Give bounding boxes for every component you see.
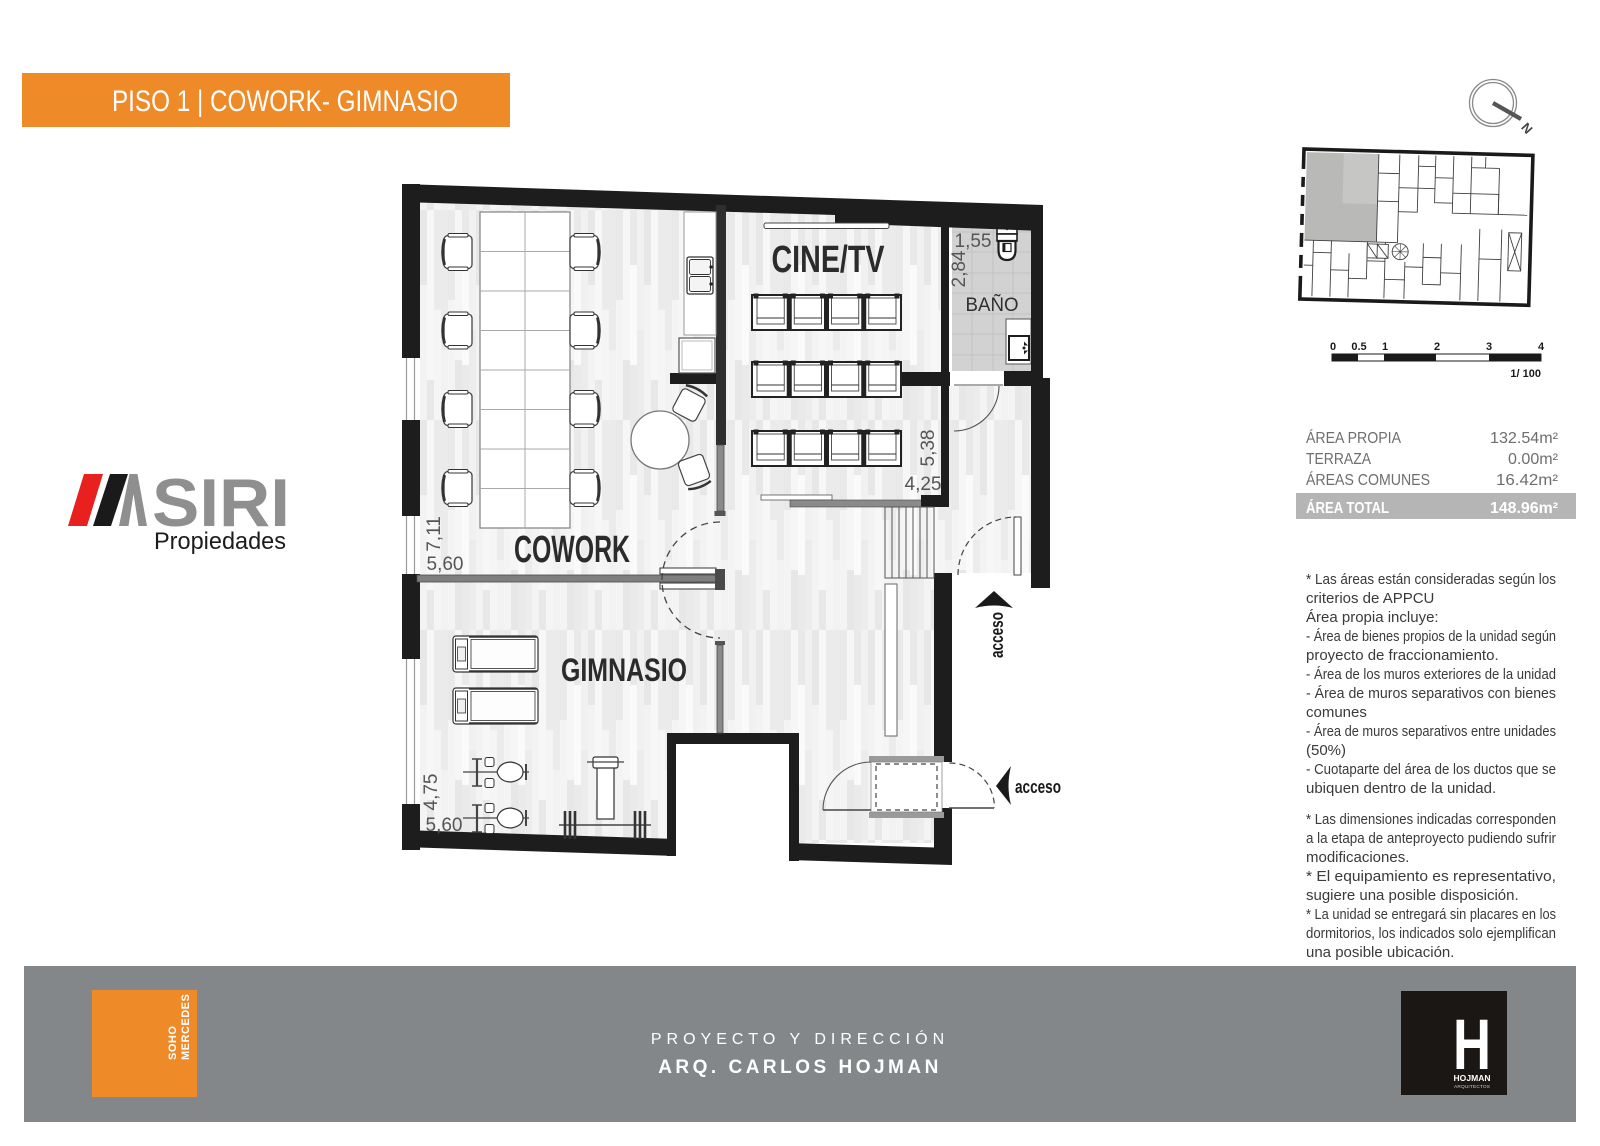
- svg-text:HOJMAN: HOJMAN: [1454, 1073, 1491, 1083]
- svg-text:5,38: 5,38: [918, 430, 939, 467]
- svg-text:2: 2: [1434, 341, 1440, 353]
- svg-text:1: 1: [1382, 341, 1388, 353]
- svg-text:- Área de bienes propios de la: - Área de bienes propios de la unidad se…: [1306, 628, 1556, 645]
- svg-text:acceso: acceso: [1015, 776, 1061, 797]
- svg-text:5,60: 5,60: [426, 815, 463, 836]
- svg-text:16.42m²: 16.42m²: [1496, 472, 1558, 489]
- svg-text:* La unidad se entregará sin p: * La unidad se entregará sin placares en…: [1306, 906, 1556, 923]
- svg-text:- Área de muros separativos en: - Área de muros separativos entre unidad…: [1306, 723, 1556, 740]
- svg-text:- Área de los muros exteriores: - Área de los muros exteriores de la uni…: [1306, 666, 1556, 683]
- svg-text:ARQUITECTOS: ARQUITECTOS: [1454, 1084, 1490, 1090]
- svg-text:0.00m²: 0.00m²: [1508, 451, 1558, 468]
- svg-text:sugiere una posible disposició: sugiere una posible disposición.: [1306, 887, 1519, 904]
- svg-text:1/ 100: 1/ 100: [1510, 368, 1541, 380]
- svg-text:ubiquen dentro de la unidad.: ubiquen dentro de la unidad.: [1306, 780, 1496, 797]
- svg-text:PROYECTO Y DIRECCIÓN: PROYECTO Y DIRECCIÓN: [651, 1029, 949, 1048]
- svg-text:PISO 1 | COWORK- GIMNASIO: PISO 1 | COWORK- GIMNASIO: [112, 85, 458, 118]
- svg-text:148.96m²: 148.96m²: [1490, 500, 1558, 517]
- svg-text:Área propia incluye:: Área propia incluye:: [1306, 609, 1439, 626]
- svg-text:2,84: 2,84: [949, 250, 970, 287]
- svg-text:a la etapa de anteproyecto pud: a la etapa de anteproyecto pudiendo sufr…: [1306, 830, 1556, 847]
- svg-text:acceso: acceso: [986, 612, 1007, 658]
- svg-text:3: 3: [1486, 341, 1492, 353]
- svg-text:* El equipamiento es represent: * El equipamiento es representativo,: [1306, 868, 1556, 885]
- svg-text:GIMNASIO: GIMNASIO: [561, 652, 687, 688]
- svg-text:ÁREA PROPIA: ÁREA PROPIA: [1306, 430, 1402, 447]
- svg-text:4,25: 4,25: [905, 474, 942, 495]
- svg-text:TERRAZA: TERRAZA: [1306, 451, 1372, 468]
- svg-text:modificaciones.: modificaciones.: [1306, 849, 1409, 866]
- svg-text:4: 4: [1538, 341, 1545, 353]
- svg-text:ÁREA TOTAL: ÁREA TOTAL: [1306, 500, 1389, 517]
- svg-text:SOHO: SOHO: [167, 1026, 179, 1060]
- svg-text:(50%): (50%): [1306, 742, 1346, 759]
- svg-text:5,60: 5,60: [427, 554, 464, 575]
- svg-text:criterios de APPCU: criterios de APPCU: [1306, 590, 1434, 607]
- svg-text:dormitorios, los indicados sol: dormitorios, los indicados solo ejemplif…: [1306, 925, 1556, 942]
- svg-text:proyecto de fraccionamiento.: proyecto de fraccionamiento.: [1306, 647, 1499, 664]
- svg-text:- Cuotaparte del área de los d: - Cuotaparte del área de los ductos que …: [1306, 761, 1556, 778]
- svg-text:1,55: 1,55: [955, 231, 992, 252]
- svg-text:BAÑO: BAÑO: [966, 294, 1019, 316]
- svg-text:COWORK: COWORK: [514, 529, 630, 571]
- svg-text:ÁREAS COMUNES: ÁREAS COMUNES: [1306, 472, 1430, 489]
- svg-text:0: 0: [1330, 341, 1336, 353]
- svg-text:comunes: comunes: [1306, 704, 1367, 721]
- svg-text:* Las dimensiones indicadas co: * Las dimensiones indicadas corresponden: [1306, 811, 1556, 828]
- svg-text:CINE/TV: CINE/TV: [772, 239, 885, 281]
- svg-text:- Área de muros separativos co: - Área de muros separativos con bienes: [1306, 685, 1556, 702]
- svg-text:* Las áreas están consideradas: * Las áreas están consideradas según los: [1306, 571, 1556, 588]
- svg-text:MERCEDES: MERCEDES: [180, 994, 192, 1060]
- svg-text:ARQ. CARLOS HOJMAN: ARQ. CARLOS HOJMAN: [658, 1057, 942, 1078]
- svg-text:una posible ubicación.: una posible ubicación.: [1306, 944, 1454, 961]
- svg-text:0.5: 0.5: [1351, 341, 1366, 353]
- svg-text:Propiedades: Propiedades: [154, 528, 286, 555]
- svg-text:4,75: 4,75: [421, 774, 442, 811]
- svg-text:132.54m²: 132.54m²: [1490, 430, 1558, 447]
- svg-text:7,11: 7,11: [424, 516, 445, 552]
